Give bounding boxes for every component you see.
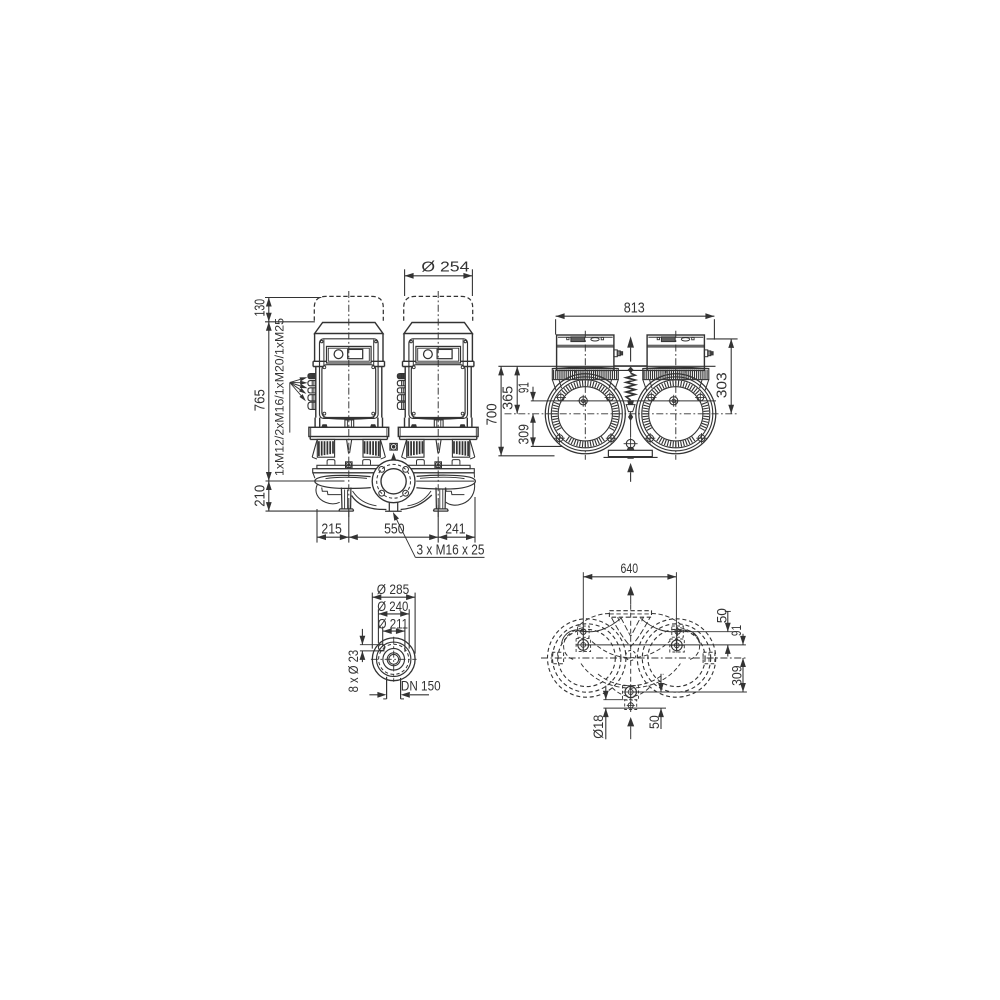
- svg-text:813: 813: [624, 300, 645, 317]
- svg-text:303: 303: [714, 372, 731, 398]
- svg-text:309: 309: [728, 665, 744, 686]
- svg-text:309: 309: [516, 424, 533, 444]
- svg-text:91: 91: [515, 382, 532, 393]
- svg-text:Ø18: Ø18: [590, 715, 606, 739]
- svg-text:3 x M16 x 25: 3 x M16 x 25: [417, 542, 485, 559]
- svg-text:640: 640: [621, 560, 639, 576]
- svg-text:8 x Ø 23: 8 x Ø 23: [346, 650, 361, 693]
- svg-text:50: 50: [646, 715, 662, 729]
- svg-text:91: 91: [728, 625, 744, 636]
- svg-text:DN 150: DN 150: [401, 679, 441, 694]
- svg-text:215: 215: [321, 520, 341, 537]
- svg-text:1xM12/2xM16/1xM20/1xM25: 1xM12/2xM16/1xM20/1xM25: [272, 318, 286, 476]
- svg-text:365: 365: [500, 386, 517, 410]
- svg-text:Ø 285: Ø 285: [377, 582, 409, 597]
- svg-text:Ø 211: Ø 211: [378, 617, 408, 632]
- svg-text:241: 241: [445, 520, 465, 537]
- svg-text:130: 130: [251, 299, 268, 317]
- svg-text:765: 765: [251, 389, 268, 411]
- svg-text:50: 50: [713, 608, 729, 623]
- svg-text:Ø 254: Ø 254: [421, 258, 469, 275]
- svg-text:700: 700: [484, 403, 501, 425]
- svg-text:210: 210: [252, 485, 269, 507]
- svg-text:Ø 240: Ø 240: [377, 599, 408, 614]
